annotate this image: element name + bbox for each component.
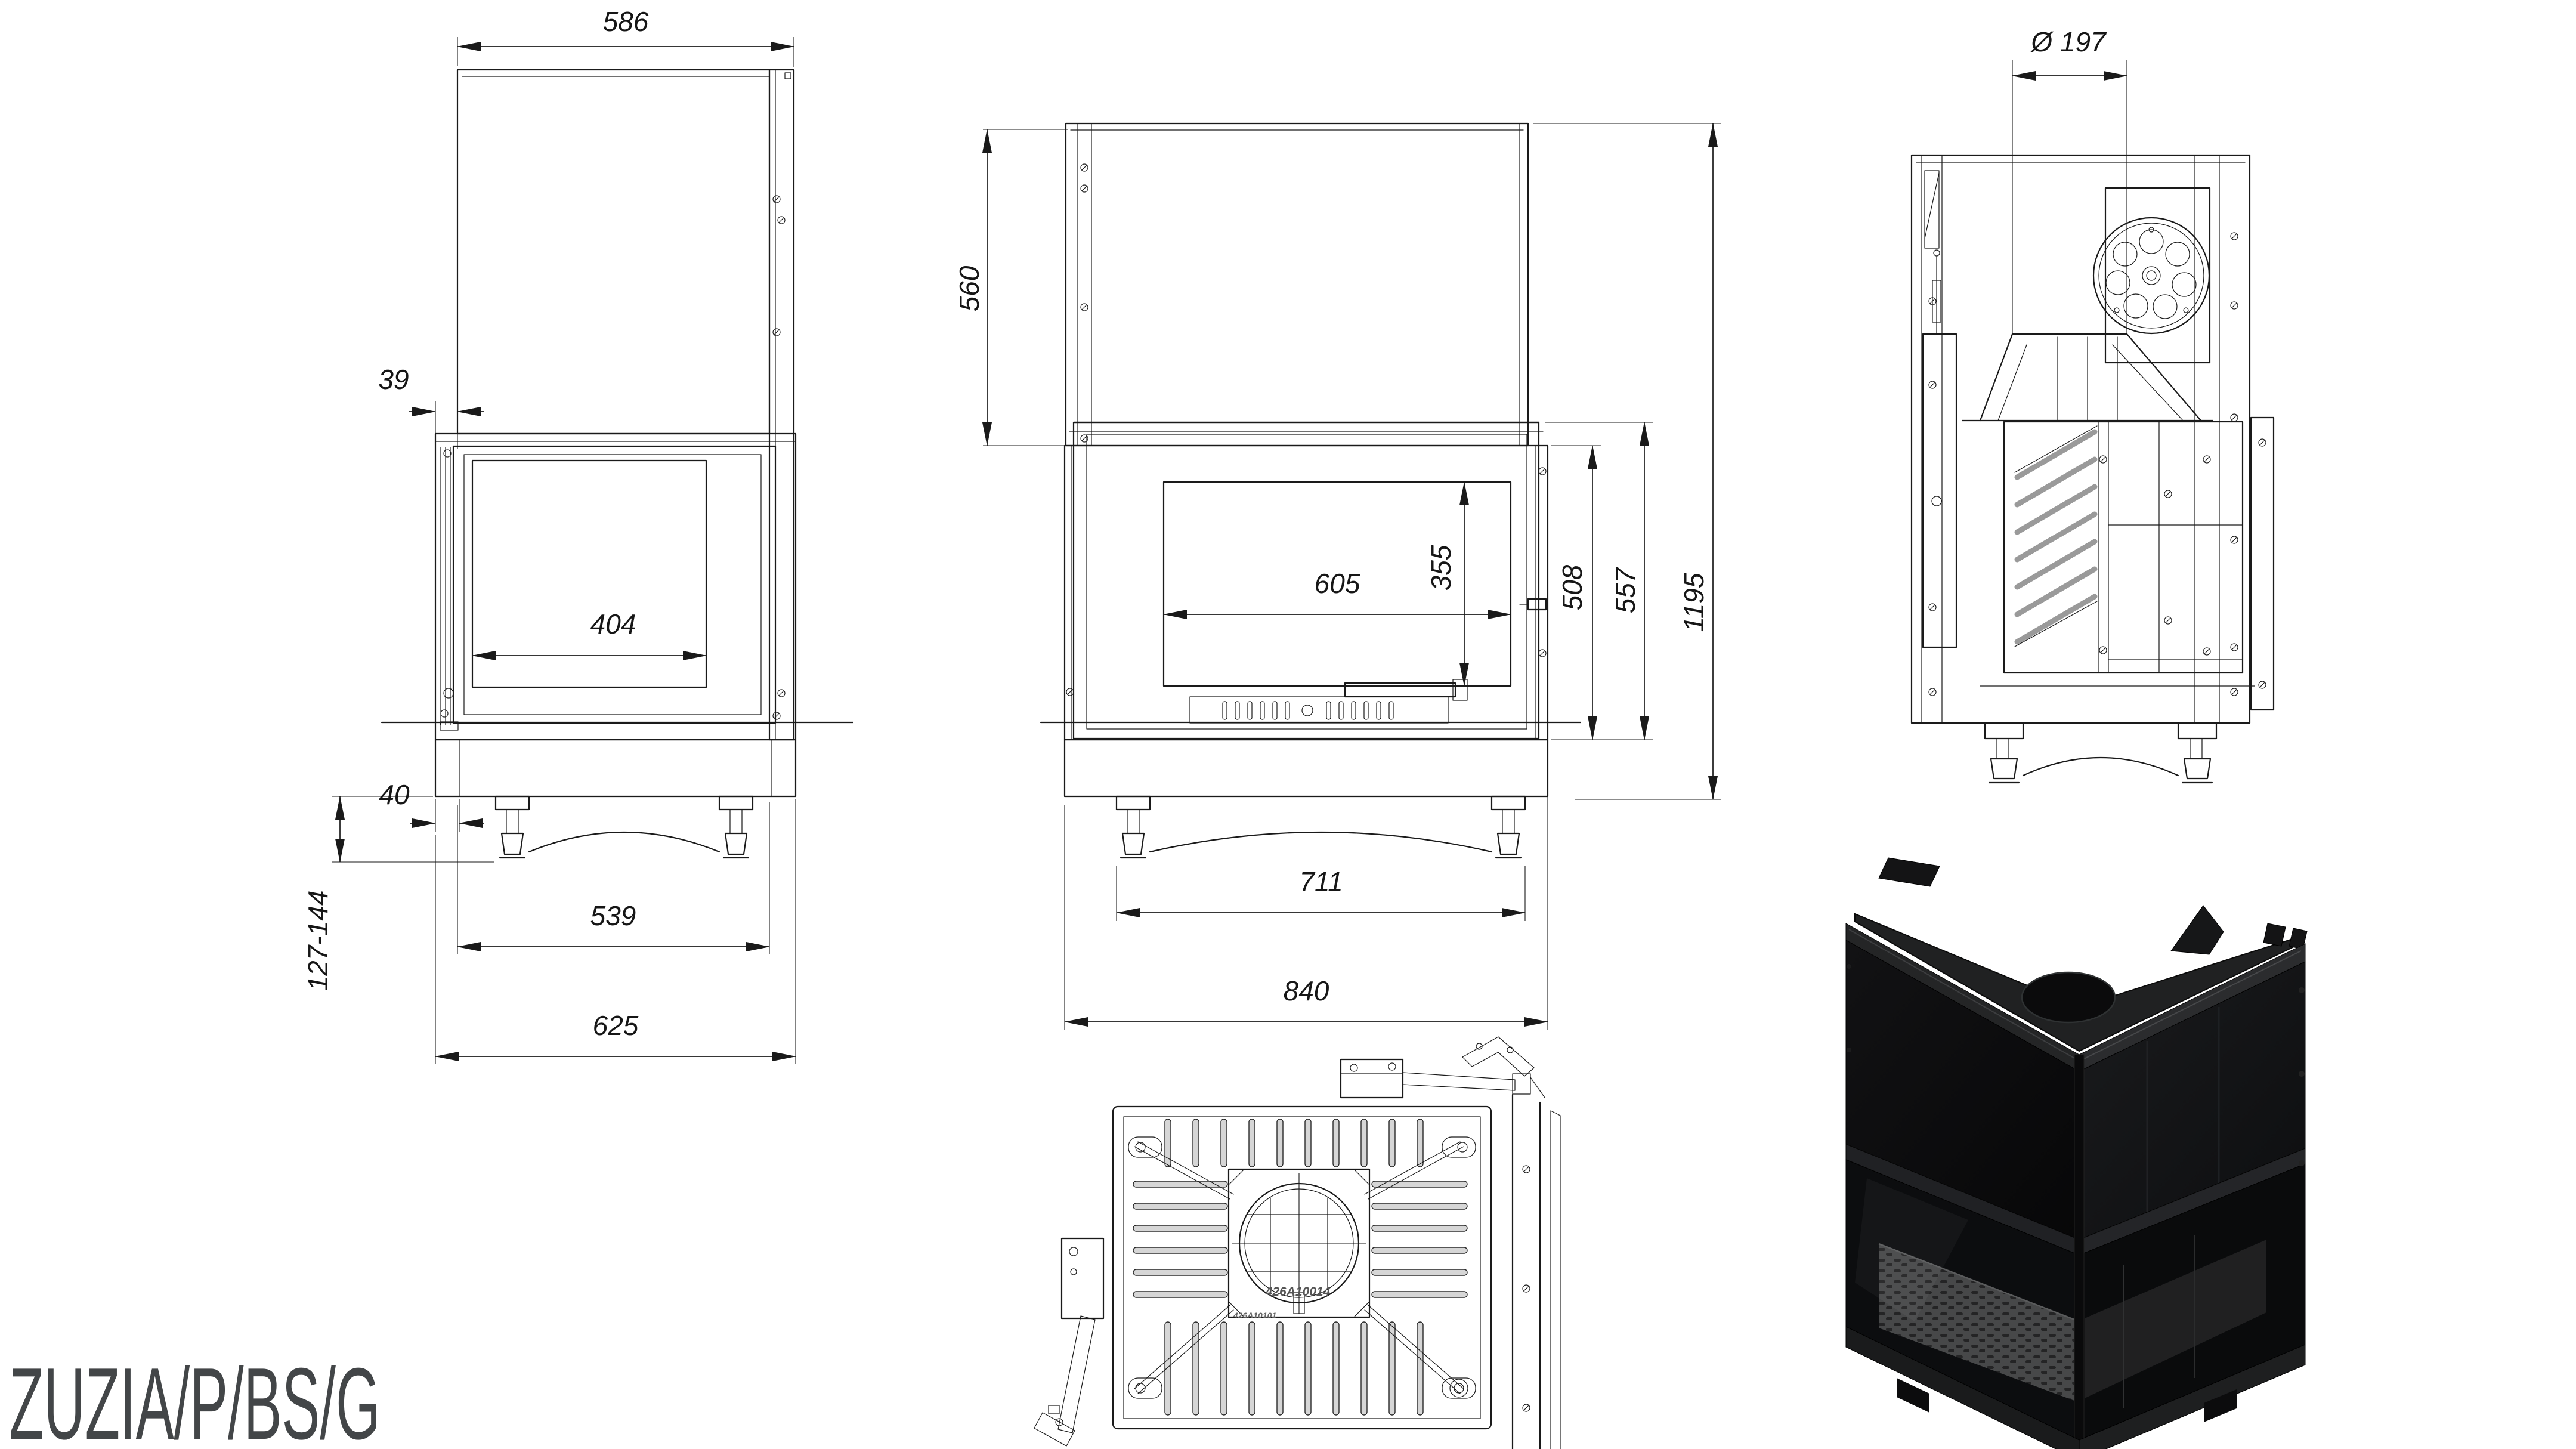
dim-side-depth-top: 586: [603, 6, 649, 37]
dim-front-door-height: 557: [1610, 567, 1641, 613]
dim-front-feet-span: 711: [1299, 866, 1343, 897]
dim-side-body-depth: 539: [590, 900, 636, 931]
dim-front-total-height: 1195: [1678, 573, 1709, 632]
dim-front-chamber-height: 560: [954, 265, 985, 311]
front-view: 560 605 355: [954, 123, 1721, 1030]
side-view: 586 404 39: [302, 6, 853, 1064]
dim-front-glass-width: 605: [1315, 568, 1360, 599]
flue-outlet: [2022, 972, 2115, 1022]
top-view: 426A10014 426A10101: [1034, 1037, 1560, 1449]
dim-front-firebox-height: 508: [1557, 564, 1588, 610]
top-plate-fins: [1133, 1119, 1467, 1415]
rear-view: Ø 197: [1912, 26, 2274, 783]
technical-drawing: 586 404 39: [0, 0, 2576, 1449]
dim-flue-diameter: Ø 197: [2030, 26, 2107, 57]
part-number-primary: 426A10014: [1265, 1285, 1331, 1299]
heat-exchanger-fins: [2015, 426, 2097, 647]
dim-side-total-depth: 625: [593, 1010, 639, 1041]
dim-side-feet-adjust: 127-144: [302, 891, 333, 991]
dim-side-glass-width: 404: [590, 608, 636, 639]
render-3d: [1846, 858, 2307, 1449]
dim-side-front-offset-top: 39: [378, 364, 409, 395]
dim-front-glass-height: 355: [1425, 545, 1456, 591]
drawing-sheet: 586 404 39: [0, 0, 2576, 1449]
product-code: ZUZIA/P/BS/G: [9, 1348, 381, 1449]
dim-front-total-width: 840: [1284, 975, 1329, 1006]
dim-side-front-offset-bottom: 40: [379, 779, 410, 810]
part-number-secondary: 426A10101: [1233, 1311, 1277, 1320]
